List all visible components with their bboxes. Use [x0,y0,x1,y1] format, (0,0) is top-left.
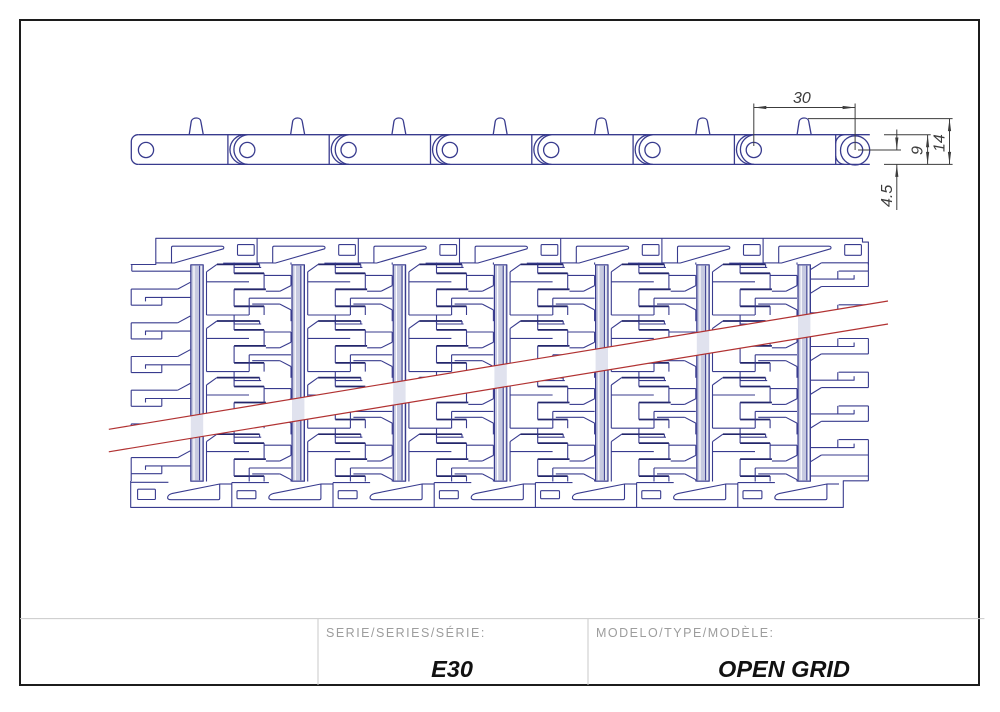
svg-text:SERIE/SERIES/SÉRIE:: SERIE/SERIES/SÉRIE: [326,625,486,640]
svg-text:OPEN GRID: OPEN GRID [718,656,850,682]
svg-text:9: 9 [910,146,927,155]
svg-text:MODELO/TYPE/MODÈLE:: MODELO/TYPE/MODÈLE: [596,625,775,640]
svg-text:14: 14 [932,134,949,152]
svg-text:E30: E30 [431,656,473,682]
svg-text:4.5: 4.5 [879,185,896,207]
svg-text:30: 30 [793,90,811,107]
